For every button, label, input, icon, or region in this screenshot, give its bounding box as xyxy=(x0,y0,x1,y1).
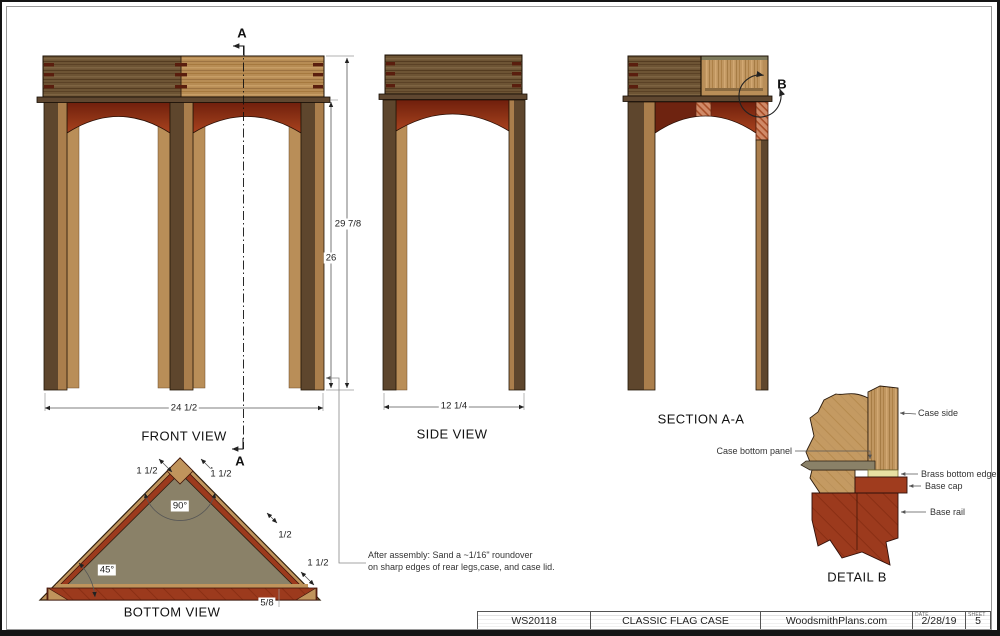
sheet-label: SHEET xyxy=(968,612,986,618)
section-apron xyxy=(655,102,756,133)
title-block-plan-number: WS20118 xyxy=(478,612,591,629)
dim-rail-thickness: 1/2 xyxy=(276,530,293,541)
assembly-note-line2: on sharp edges of rear legs,case, and ca… xyxy=(368,562,555,574)
label-brass-bottom-edge: Brass bottom edge xyxy=(920,469,998,479)
dim-front-width: 24 1/2 xyxy=(169,403,199,414)
detail-base-cap xyxy=(855,477,907,493)
front-legs xyxy=(44,102,324,390)
title-block: WS20118 CLASSIC FLAG CASE WoodsmithPlans… xyxy=(477,611,991,630)
side-rear-leg-strip xyxy=(396,125,407,390)
section-view-title: SECTION A-A xyxy=(658,412,745,427)
title-block-website: WoodsmithPlans.com xyxy=(761,612,913,629)
drawing-canvas xyxy=(0,0,1000,636)
section-mark-a-top: A xyxy=(237,26,246,41)
bottom-view-title: BOTTOM VIEW xyxy=(124,605,221,620)
dim-rear-corner-block: 1 1/2 xyxy=(305,558,330,569)
detail-case-bottom-panel xyxy=(801,461,875,470)
side-case-ledge xyxy=(379,94,527,100)
front-view-title: FRONT VIEW xyxy=(141,429,226,444)
front-apron-right xyxy=(193,102,301,133)
section-mark-a-bottom: A xyxy=(235,454,244,469)
detail-mark-b: B xyxy=(777,77,786,92)
front-rear-leg-strip xyxy=(193,120,205,388)
front-rear-leg-strip xyxy=(67,120,79,388)
side-view-drawing xyxy=(379,55,527,390)
case-bottom-panel-face xyxy=(60,473,300,592)
label-base-rail: Base rail xyxy=(929,507,966,517)
front-case xyxy=(37,56,330,103)
front-case-ledge xyxy=(37,97,330,103)
dim-corner-block-left: 1 1/2 xyxy=(134,466,159,477)
section-legs xyxy=(628,102,768,390)
side-apron xyxy=(396,100,509,131)
title-block-date-cell: DATE 2/28/19 xyxy=(913,612,966,629)
label-base-cap: Base cap xyxy=(924,481,964,491)
side-case xyxy=(379,55,527,100)
dim-corner-angle: 45° xyxy=(98,565,116,576)
title-block-title: CLASSIC FLAG CASE xyxy=(591,612,761,629)
drawing-sheet: FRONT VIEW SIDE VIEW SECTION A-A BOTTOM … xyxy=(0,0,1000,636)
detail-case-side xyxy=(868,386,898,470)
front-rear-leg-strip xyxy=(289,120,301,388)
assembly-note: After assembly: Sand a ~1/16" roundover … xyxy=(368,550,555,573)
detail-brass-edge xyxy=(868,470,898,477)
front-apron-left xyxy=(67,102,170,133)
assembly-note-line1: After assembly: Sand a ~1/16" roundover xyxy=(368,550,555,562)
dim-corner-block-right: 1 1/2 xyxy=(208,469,233,480)
title-block-sheet-cell: SHEET 5 xyxy=(966,612,990,629)
side-view-title: SIDE VIEW xyxy=(417,427,488,442)
detail-case-molding xyxy=(806,394,868,462)
section-cut-post xyxy=(756,102,768,140)
detail-base-rail xyxy=(812,493,898,565)
section-case xyxy=(623,56,772,102)
dim-side-width: 12 1/4 xyxy=(439,401,469,412)
front-view-drawing xyxy=(37,56,330,390)
dim-leg-height: 26 xyxy=(324,253,339,264)
dim-apex-angle: 90° xyxy=(171,501,189,512)
date-label: DATE xyxy=(915,612,929,618)
detail-b-title: DETAIL B xyxy=(827,570,887,585)
detail-b-drawing xyxy=(795,386,926,565)
dim-base-offset: 5/8 xyxy=(258,598,275,609)
section-view-drawing xyxy=(623,56,781,390)
front-rear-leg-strip xyxy=(158,120,170,388)
note-leader-line xyxy=(326,378,366,563)
section-case-ledge xyxy=(623,96,772,102)
dim-total-height: 29 7/8 xyxy=(333,219,363,230)
label-case-bottom-panel: Case bottom panel xyxy=(715,446,793,456)
label-case-side: Case side xyxy=(917,408,959,418)
bottom-base-rail xyxy=(47,588,317,600)
